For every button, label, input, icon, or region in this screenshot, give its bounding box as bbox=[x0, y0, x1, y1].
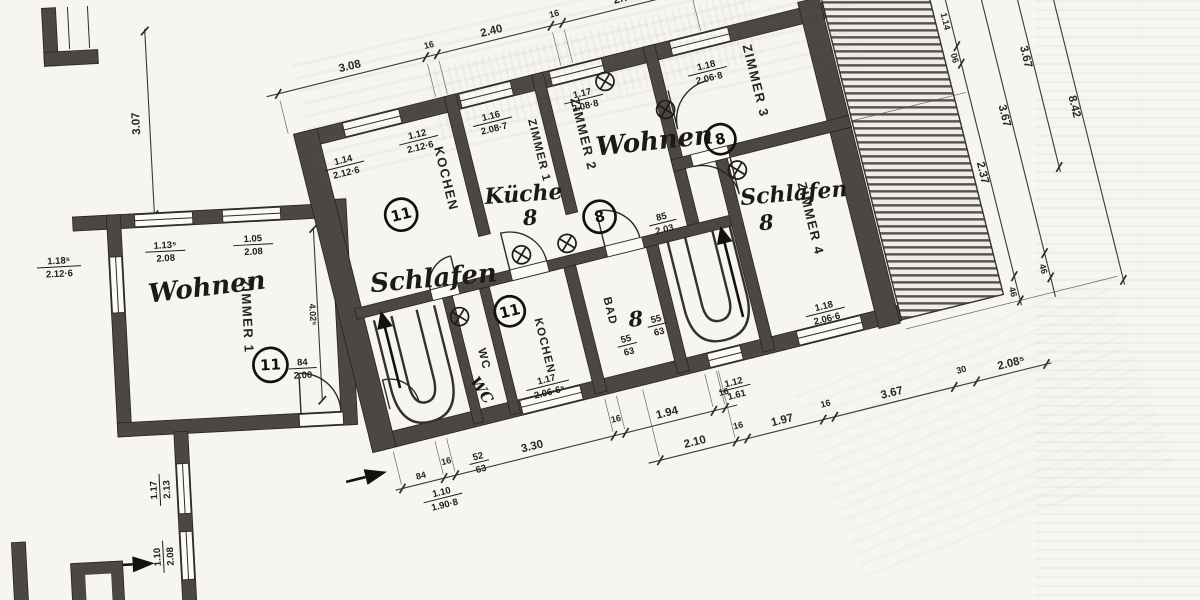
wall bbox=[106, 215, 132, 437]
room-label-printed: WC bbox=[475, 347, 492, 371]
svg-text:63: 63 bbox=[623, 345, 636, 358]
svg-text:8.42: 8.42 bbox=[1066, 94, 1083, 119]
svg-text:2.00: 2.00 bbox=[294, 370, 313, 382]
svg-text:4.02⁵: 4.02⁵ bbox=[307, 303, 318, 325]
window bbox=[110, 257, 125, 314]
svg-text:1.18⁵: 1.18⁵ bbox=[47, 255, 70, 267]
room-name-handwritten: Schlafen bbox=[369, 258, 498, 299]
svg-text:63: 63 bbox=[653, 326, 666, 339]
svg-text:2.08: 2.08 bbox=[244, 246, 263, 258]
left-wing-zimmer1: 3.07 1.13⁵ 2.08 1.05 2.08 1.18⁵ bbox=[0, 0, 367, 600]
circle-x-icon bbox=[511, 244, 533, 266]
handwritten-number: 8 bbox=[757, 209, 775, 235]
room-label-printed: KOCHEN bbox=[431, 145, 462, 213]
svg-text:1.13⁵: 1.13⁵ bbox=[153, 240, 176, 252]
main-building-band: KOCHEN ZIMMER 1 ZIMMER 2 ZIMMER 3 ZIMMER… bbox=[247, 0, 1143, 539]
svg-text:1.97: 1.97 bbox=[770, 412, 795, 429]
svg-text:1.94: 1.94 bbox=[655, 405, 680, 422]
lower-left-wing: 1.17 2.13 1.10 2.08 bbox=[6, 431, 197, 600]
handwritten-number: 8 bbox=[521, 204, 539, 230]
scanned-floorplan-page: 3.07 1.13⁵ 2.08 1.05 2.08 1.18⁵ bbox=[0, 0, 1200, 600]
room-label-printed: ZIMMER 3 bbox=[740, 43, 773, 119]
svg-text:3.08: 3.08 bbox=[338, 58, 363, 75]
entry-dim: 1.10 1.90·8 bbox=[421, 482, 466, 515]
svg-text:3.67: 3.67 bbox=[880, 385, 905, 402]
handwritten-number: 8 bbox=[626, 306, 644, 332]
corner-wall-fragment bbox=[41, 6, 98, 67]
unit-number-circle: 11 bbox=[253, 347, 289, 383]
window-dim: 1.16 2.08·7 bbox=[470, 106, 515, 139]
window-dim: 1.05 2.08 bbox=[233, 233, 274, 259]
dim-chain-right-3: 3.67 bbox=[991, 0, 1065, 175]
svg-text:30: 30 bbox=[955, 364, 967, 376]
dim-chain-right-4: 8.42 bbox=[1023, 0, 1128, 288]
svg-text:11: 11 bbox=[497, 300, 522, 323]
svg-text:16: 16 bbox=[423, 39, 435, 51]
svg-text:84: 84 bbox=[297, 357, 309, 369]
entrance-arrow bbox=[344, 464, 389, 490]
svg-text:2.13: 2.13 bbox=[161, 480, 173, 499]
svg-text:2.37: 2.37 bbox=[974, 161, 991, 186]
window-dim: 1.13⁵ 2.08 bbox=[145, 239, 186, 265]
svg-text:1.14: 1.14 bbox=[939, 12, 953, 31]
dim-value: 3.07 bbox=[130, 112, 143, 135]
svg-text:16: 16 bbox=[732, 419, 744, 431]
svg-text:16: 16 bbox=[819, 398, 831, 410]
svg-text:84: 84 bbox=[415, 470, 427, 482]
room-label-printed: ZIMMER 1 bbox=[238, 278, 257, 354]
small-dim: 52 63 bbox=[467, 449, 492, 477]
svg-text:2.10: 2.10 bbox=[683, 434, 708, 451]
room-label-printed: BAD bbox=[600, 296, 619, 327]
floorplan-drawing: 3.07 1.13⁵ 2.08 1.05 2.08 1.18⁵ bbox=[0, 0, 1200, 600]
svg-text:16: 16 bbox=[440, 455, 452, 467]
fixture-dim: 55 63 bbox=[615, 332, 640, 360]
svg-text:2.40: 2.40 bbox=[479, 23, 504, 40]
window-dim: 1.18 2.06·8 bbox=[686, 56, 731, 89]
door-dim: 84 2.00 bbox=[288, 356, 317, 381]
unit-number-circle: 8 bbox=[580, 197, 619, 236]
svg-text:46: 46 bbox=[1007, 286, 1019, 298]
room-name-handwritten: Schlafen bbox=[739, 176, 848, 211]
wall bbox=[646, 244, 689, 373]
window-dim: 1.18⁵ 2.12·6 bbox=[36, 255, 81, 281]
svg-text:2.08: 2.08 bbox=[156, 253, 175, 265]
svg-text:11: 11 bbox=[260, 355, 282, 374]
svg-text:8: 8 bbox=[713, 129, 727, 149]
svg-text:3.30: 3.30 bbox=[520, 438, 545, 455]
svg-text:06: 06 bbox=[949, 52, 961, 64]
svg-text:11: 11 bbox=[389, 203, 414, 226]
svg-text:1.10: 1.10 bbox=[152, 548, 164, 567]
svg-text:3.67: 3.67 bbox=[1017, 45, 1034, 70]
svg-text:3.67: 3.67 bbox=[996, 104, 1013, 129]
svg-text:16: 16 bbox=[548, 8, 560, 20]
unit-number-circle: 11 bbox=[382, 195, 421, 234]
room-label-printed: KOCHEN bbox=[531, 317, 556, 375]
dim-chain-bottom-2: 2.10 16 1.97 16 3.67 30 2.08⁵ bbox=[631, 292, 1052, 467]
svg-text:1.05: 1.05 bbox=[243, 233, 263, 245]
wall bbox=[564, 265, 607, 394]
svg-text:2.12·6: 2.12·6 bbox=[46, 268, 73, 280]
svg-text:2.08: 2.08 bbox=[165, 547, 177, 566]
svg-text:16: 16 bbox=[610, 413, 622, 425]
dim-chain-left: 3.07 bbox=[126, 27, 159, 220]
circle-x-icon bbox=[556, 232, 578, 254]
svg-text:46: 46 bbox=[1037, 263, 1049, 275]
svg-text:1.17: 1.17 bbox=[148, 481, 160, 500]
